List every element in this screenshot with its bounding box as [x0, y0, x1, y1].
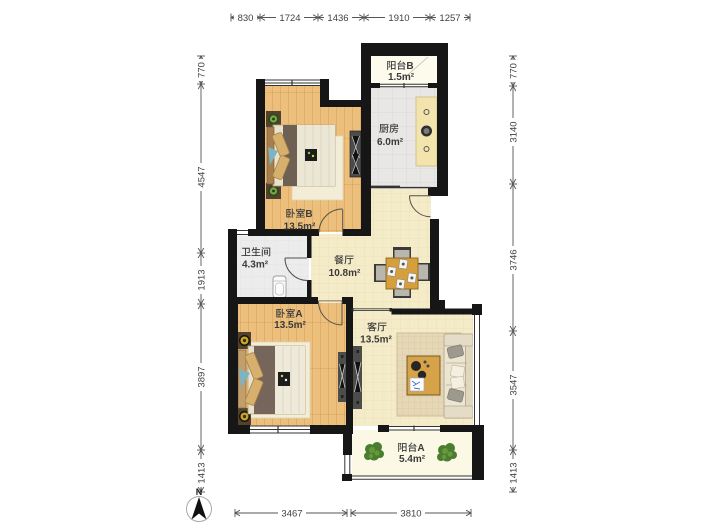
- svg-text:5.4m²: 5.4m²: [399, 454, 426, 465]
- svg-text:830: 830: [238, 13, 254, 24]
- svg-text:13.5m²: 13.5m²: [284, 222, 316, 233]
- svg-text:10.8m²: 10.8m²: [329, 268, 361, 279]
- svg-text:1913: 1913: [197, 269, 208, 290]
- svg-text:6.0m²: 6.0m²: [377, 137, 404, 148]
- svg-text:4.3m²: 4.3m²: [242, 260, 269, 271]
- svg-text:1.5m²: 1.5m²: [388, 72, 415, 83]
- svg-text:3897: 3897: [197, 366, 208, 387]
- svg-text:B: B: [406, 61, 413, 72]
- svg-text:1413: 1413: [509, 462, 520, 483]
- svg-text:N: N: [196, 487, 203, 497]
- svg-text:13.5m²: 13.5m²: [274, 320, 306, 331]
- svg-text:1257: 1257: [439, 13, 460, 24]
- svg-text:3467: 3467: [281, 509, 302, 520]
- svg-text:3746: 3746: [509, 249, 520, 270]
- svg-text:A: A: [295, 309, 302, 320]
- svg-text:A: A: [417, 443, 424, 454]
- svg-text:770: 770: [197, 62, 208, 78]
- svg-text:770: 770: [509, 63, 520, 79]
- svg-text:1910: 1910: [388, 13, 409, 24]
- svg-text:4547: 4547: [197, 166, 208, 187]
- svg-text:3810: 3810: [400, 509, 421, 520]
- svg-text:3140: 3140: [509, 121, 520, 142]
- svg-text:3547: 3547: [509, 374, 520, 395]
- svg-text:13.5m²: 13.5m²: [360, 335, 392, 346]
- svg-text:1436: 1436: [327, 13, 348, 24]
- svg-text:1413: 1413: [197, 462, 208, 483]
- svg-text:B: B: [305, 209, 312, 220]
- svg-text:1724: 1724: [279, 13, 300, 24]
